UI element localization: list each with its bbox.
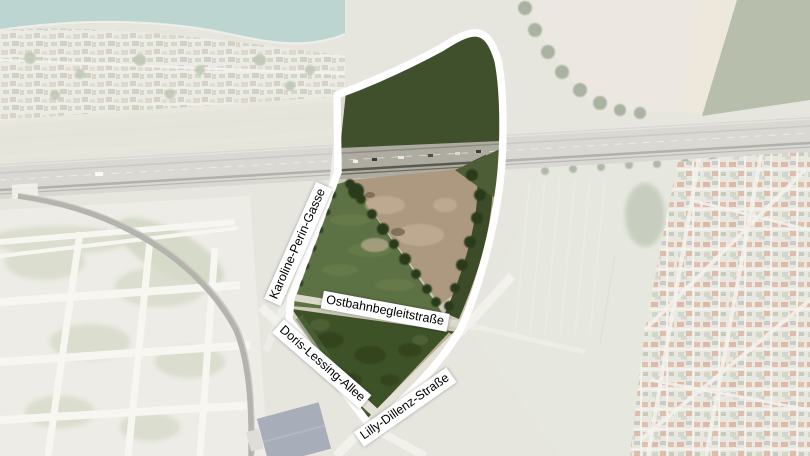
aerial-map-canvas: Karoline-Perin-Gasse Ostbahnbegleitstraß… [0,0,810,456]
aerial-basemap [0,0,810,456]
